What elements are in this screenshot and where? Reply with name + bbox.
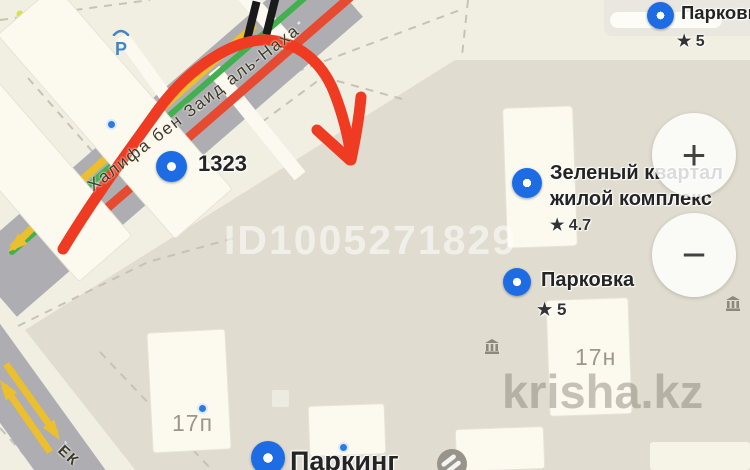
parking-mid-rating: ★ 5 [537, 300, 566, 320]
poi-parking-mid-icon[interactable] [503, 268, 531, 296]
minus-icon: − [682, 231, 707, 279]
poi-parking-top-label[interactable]: Парковка [681, 2, 750, 24]
poi-parking-top-icon[interactable] [647, 2, 674, 29]
parking-p-icon: P [112, 24, 130, 58]
watermark-listing-id: ID1005271829 [224, 217, 517, 264]
zoom-out-button[interactable]: − [652, 213, 736, 297]
plus-icon: + [682, 131, 707, 179]
parking-top-rating: ★ 5 [677, 31, 705, 51]
small-structure [272, 390, 289, 407]
roof-caret-icon [112, 28, 130, 36]
poi-complex-icon[interactable] [512, 168, 542, 198]
zoom-in-button[interactable]: + [652, 113, 736, 197]
building-number-17p: 17п [172, 410, 213, 437]
poi-parking-mid-label[interactable]: Парковка [541, 269, 634, 292]
poi-1323-label[interactable]: 1323 [198, 151, 247, 177]
building-bottom-2 [650, 442, 750, 470]
poi-parking-garage-label[interactable]: Паркинг [290, 446, 399, 470]
watermark-brand: krisha.kz [502, 364, 703, 419]
entrance-dot-1 [106, 119, 117, 130]
building-bottom-1 [455, 426, 544, 470]
map-canvas[interactable]: Халифа бен Заид аль-Наха ЕК P 1323 Зелен… [0, 0, 750, 470]
poi-1323-icon[interactable] [156, 151, 187, 182]
poi-parking-garage-icon[interactable] [251, 441, 285, 470]
